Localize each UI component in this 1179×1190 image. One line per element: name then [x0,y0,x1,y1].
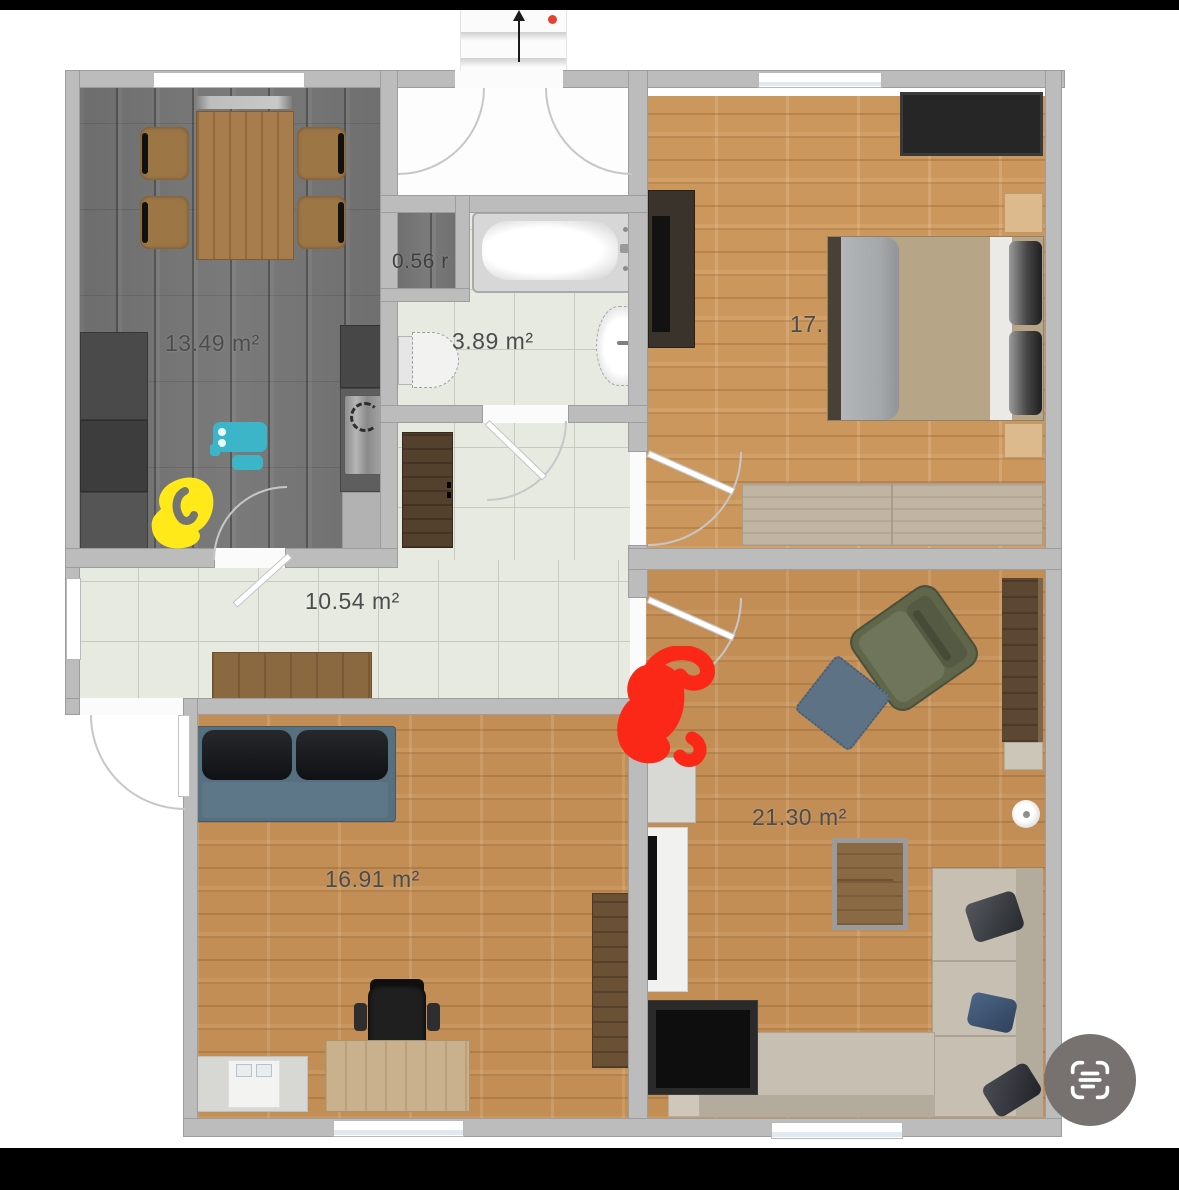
tv-shelf [646,1000,758,1095]
bottom-letterbox-bar [0,1148,1179,1190]
door-swing-arc [90,715,185,810]
nightstand [1004,423,1043,458]
dining-chair [140,127,189,180]
wall [65,698,80,715]
hall-cabinet [402,432,453,548]
wall [628,548,1062,570]
scan-text-icon [1064,1054,1116,1106]
wall [455,195,470,302]
living-area-label: 21.30 m² [752,804,847,831]
office-wardrobe [592,893,630,1068]
door-leaf [178,715,190,797]
window [771,1122,903,1139]
hall-sideboard [212,652,372,700]
desk [325,1040,470,1112]
wall [568,405,648,423]
cyan-highlight-annotation [210,422,270,474]
top-letterbox-bar [0,0,1179,10]
floor-lamp [1012,800,1040,828]
office-area-label: 16.91 m² [325,866,420,893]
kitchen-counter-low [342,492,385,556]
photo-viewer: 13.49 m² 0.56 r 3.89 m² 10.54 m² 17. 16.… [0,0,1179,1190]
wall [183,1118,1062,1137]
wall [380,195,648,213]
dining-table [196,111,294,260]
bedroom-dresser [648,190,695,348]
dining-chair [297,196,346,249]
bedroom-area-label: 17. [790,311,823,338]
window [333,1120,464,1137]
red-marker-annotation [612,646,716,782]
window [758,72,882,88]
living-cabinet-shelf [1004,742,1043,770]
wall [285,548,398,568]
wall [380,288,470,302]
dining-chair [297,127,346,180]
bedroom-door-opening [630,452,646,545]
wall [183,698,648,715]
kitchen-cabinet [80,332,148,420]
wall [380,405,483,423]
recording-dot [548,15,557,24]
yellow-marker-annotation [148,474,226,554]
hallway-area-label: 10.54 m² [305,588,400,615]
window [66,578,81,660]
living-cabinet [1002,578,1043,742]
pillow [1009,331,1042,415]
kitchen-cabinet [80,492,148,556]
bedroom-wardrobe [900,92,1043,156]
kitchen-sink-unit [340,388,385,492]
wall [380,70,398,568]
bedroom-bench [742,483,1043,546]
north-arrow-icon [509,8,529,66]
window [153,72,305,88]
kitchen-area-label: 13.49 m² [165,330,260,357]
balcony-door-opening [80,698,183,715]
kitchen-cabinet [80,420,148,492]
nightstand [1004,193,1043,233]
wall [1045,70,1062,1135]
pillow [1009,241,1042,325]
bathtub [472,212,636,293]
scan-text-button[interactable] [1044,1034,1136,1126]
double-bed [828,237,1043,420]
storage-area-label: 0.56 r [392,250,449,274]
front-door-opening [455,70,563,88]
bathroom-area-label: 3.89 m² [452,328,533,355]
kitchen-faucet [350,402,380,432]
dining-chair [140,196,189,249]
drawer-unit [228,1060,280,1108]
kitchen-counter [340,325,385,388]
office-sofa [196,726,396,822]
office-cabinet [196,1056,308,1112]
kitchen-shelf [195,96,292,109]
